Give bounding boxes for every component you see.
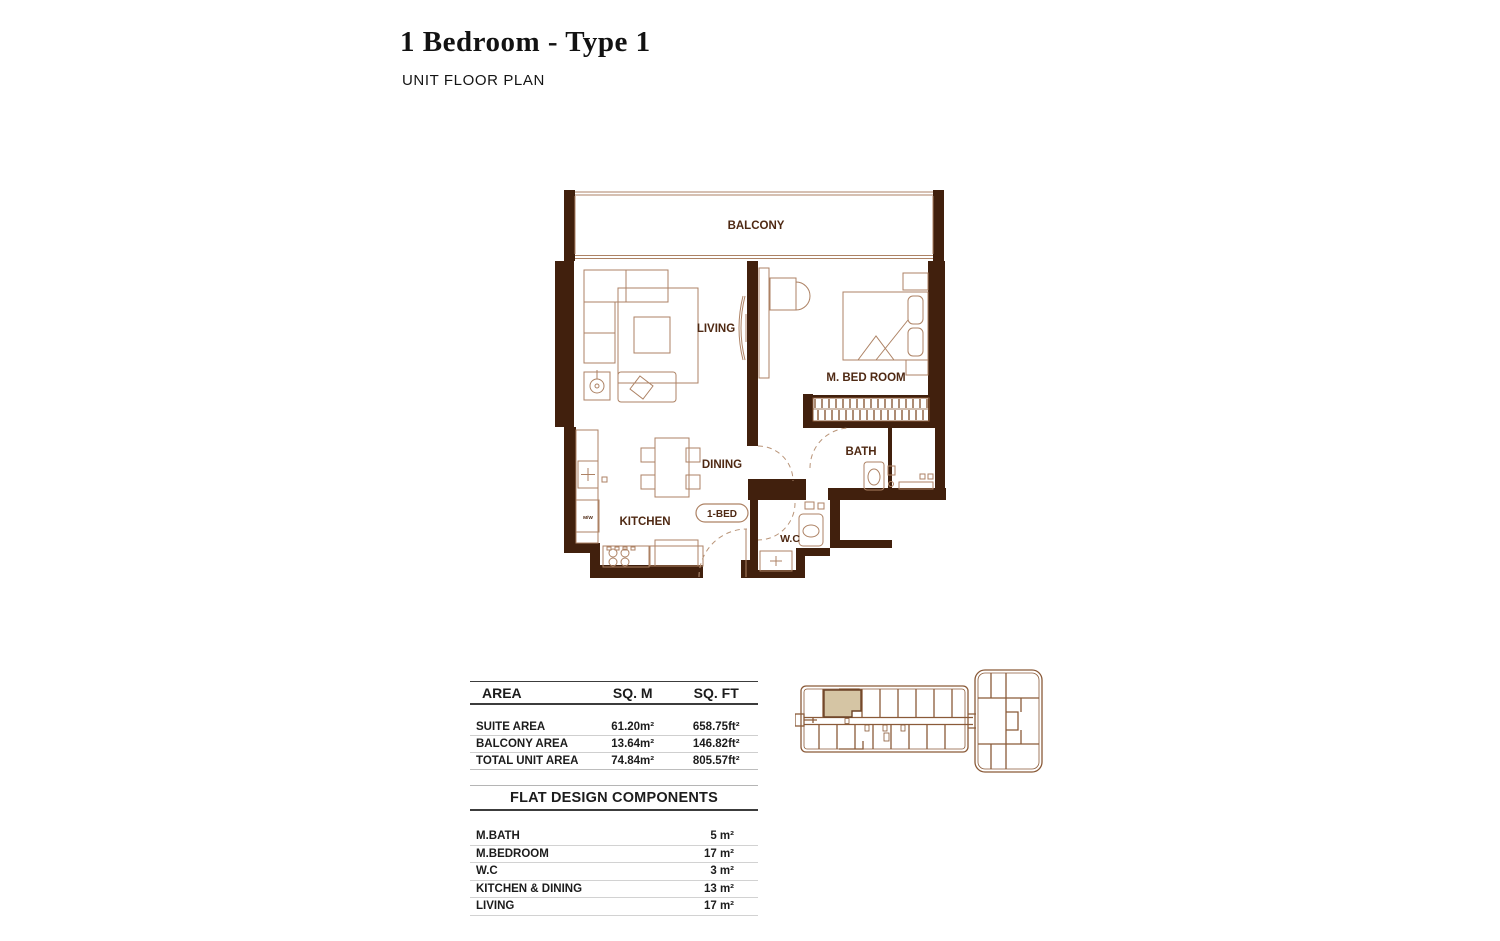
- page-title: 1 Bedroom - Type 1: [400, 26, 651, 59]
- table-row: LIVING 17 m²: [470, 898, 758, 916]
- header-area: AREA: [470, 685, 591, 701]
- wardrobe-hatch: [813, 398, 929, 421]
- label-living: LIVING: [697, 323, 735, 335]
- row-label: LIVING: [470, 900, 514, 912]
- row-value: 3 m²: [710, 865, 758, 877]
- unit-tag-label: 1-BED: [707, 509, 737, 520]
- row-label: M.BATH: [470, 830, 520, 842]
- label-balcony: BALCONY: [728, 220, 785, 232]
- floor-plan-drawing: 1-BED BALCONY LIVING M. BED ROOM DINING …: [540, 175, 970, 595]
- key-plan-outline: [795, 670, 1042, 772]
- components-table: FLAT DESIGN COMPONENTS M.BATH 5 m² M.BED…: [470, 785, 758, 916]
- row-value: 17 m²: [704, 848, 758, 860]
- header-sqft: SQ. FT: [674, 685, 758, 701]
- row-sqm: 74.84m²: [591, 755, 675, 767]
- label-bath: BATH: [845, 446, 876, 458]
- key-plan-drawing: [795, 660, 1050, 782]
- label-kitchen: KITCHEN: [619, 516, 670, 528]
- row-sqft: 146.82ft²: [674, 738, 758, 750]
- table-row: SUITE AREA 61.20m² 658.75ft²: [470, 719, 758, 736]
- label-microwave: M/W: [583, 515, 593, 521]
- row-label: W.C: [470, 865, 498, 877]
- row-label: TOTAL UNIT AREA: [470, 755, 591, 767]
- table-row: M.BEDROOM 17 m²: [470, 846, 758, 864]
- table-row: TOTAL UNIT AREA 74.84m² 805.57ft²: [470, 753, 758, 770]
- table-row: KITCHEN & DINING 13 m²: [470, 881, 758, 899]
- row-label: BALCONY AREA: [470, 738, 591, 750]
- label-wc: W.C: [780, 533, 800, 545]
- area-table-header: AREA SQ. M SQ. FT: [470, 681, 758, 705]
- table-row: BALCONY AREA 13.64m² 146.82ft²: [470, 736, 758, 753]
- row-value: 17 m²: [704, 900, 758, 912]
- area-table: AREA SQ. M SQ. FT SUITE AREA 61.20m² 658…: [470, 681, 758, 770]
- table-row: M.BATH 5 m²: [470, 828, 758, 846]
- row-sqm: 13.64m²: [591, 738, 675, 750]
- label-dining: DINING: [702, 459, 742, 471]
- row-value: 5 m²: [710, 830, 758, 842]
- page-subtitle: UNIT FLOOR PLAN: [402, 72, 545, 89]
- unit-floor-plan: 1-BED BALCONY LIVING M. BED ROOM DINING …: [540, 175, 970, 595]
- row-label: KITCHEN & DINING: [470, 883, 582, 895]
- header-sqm: SQ. M: [591, 685, 675, 701]
- row-label: SUITE AREA: [470, 721, 591, 733]
- row-value: 13 m²: [704, 883, 758, 895]
- row-label: M.BEDROOM: [470, 848, 549, 860]
- building-key-plan: [795, 660, 1050, 782]
- row-sqm: 61.20m²: [591, 721, 675, 733]
- walls: [555, 190, 946, 578]
- table-row: W.C 3 m²: [470, 863, 758, 881]
- floor-plan-page: 1 Bedroom - Type 1 UNIT FLOOR PLAN: [0, 0, 1500, 941]
- key-plan-highlighted-unit: [824, 690, 861, 717]
- label-m-bedroom: M. BED ROOM: [826, 372, 905, 384]
- row-sqft: 658.75ft²: [674, 721, 758, 733]
- unit-tag-badge: 1-BED: [696, 504, 748, 522]
- row-sqft: 805.57ft²: [674, 755, 758, 767]
- components-table-title: FLAT DESIGN COMPONENTS: [470, 785, 758, 811]
